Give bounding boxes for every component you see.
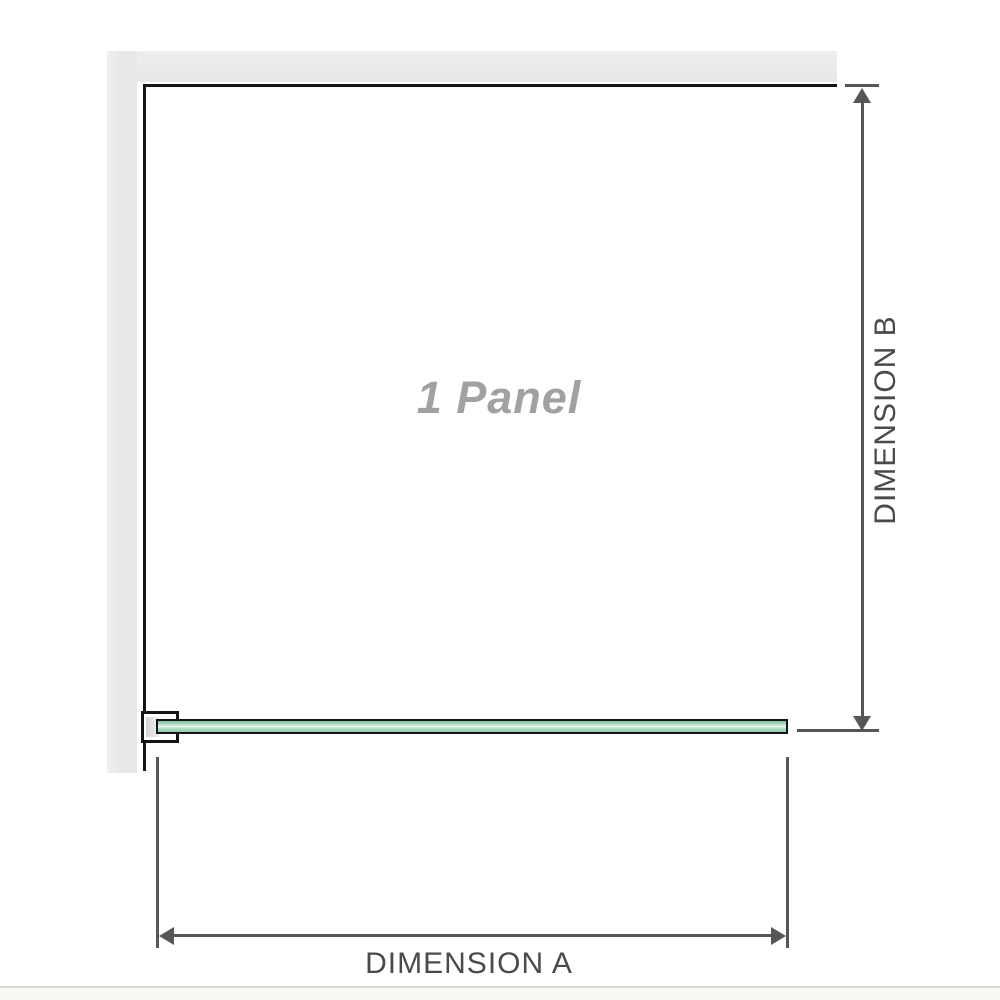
dimension-a-extension-left <box>156 757 159 948</box>
dimension-b-tick-top <box>845 84 879 87</box>
panel-outline <box>143 84 837 771</box>
dimension-a-line <box>171 934 775 937</box>
arrow-up-icon <box>853 88 871 103</box>
dimension-b-line <box>861 99 864 720</box>
dimension-b-label: DIMENSION B <box>869 270 903 570</box>
wall-top-bar <box>107 51 837 82</box>
bottom-strip <box>0 988 1000 1000</box>
arrow-left-icon <box>159 927 174 945</box>
dimension-a-extension-right <box>786 757 789 948</box>
arrow-right-icon <box>771 927 786 945</box>
arrow-down-icon <box>853 716 871 731</box>
shower-panel-dimension-diagram: 1 Panel DIMENSION B DIMENSION A <box>0 0 1000 1000</box>
panel-count-label: 1 Panel <box>349 370 649 426</box>
dimension-a-label: DIMENSION A <box>319 948 619 980</box>
wall-left-bar <box>107 51 137 773</box>
glass-panel <box>156 719 788 734</box>
